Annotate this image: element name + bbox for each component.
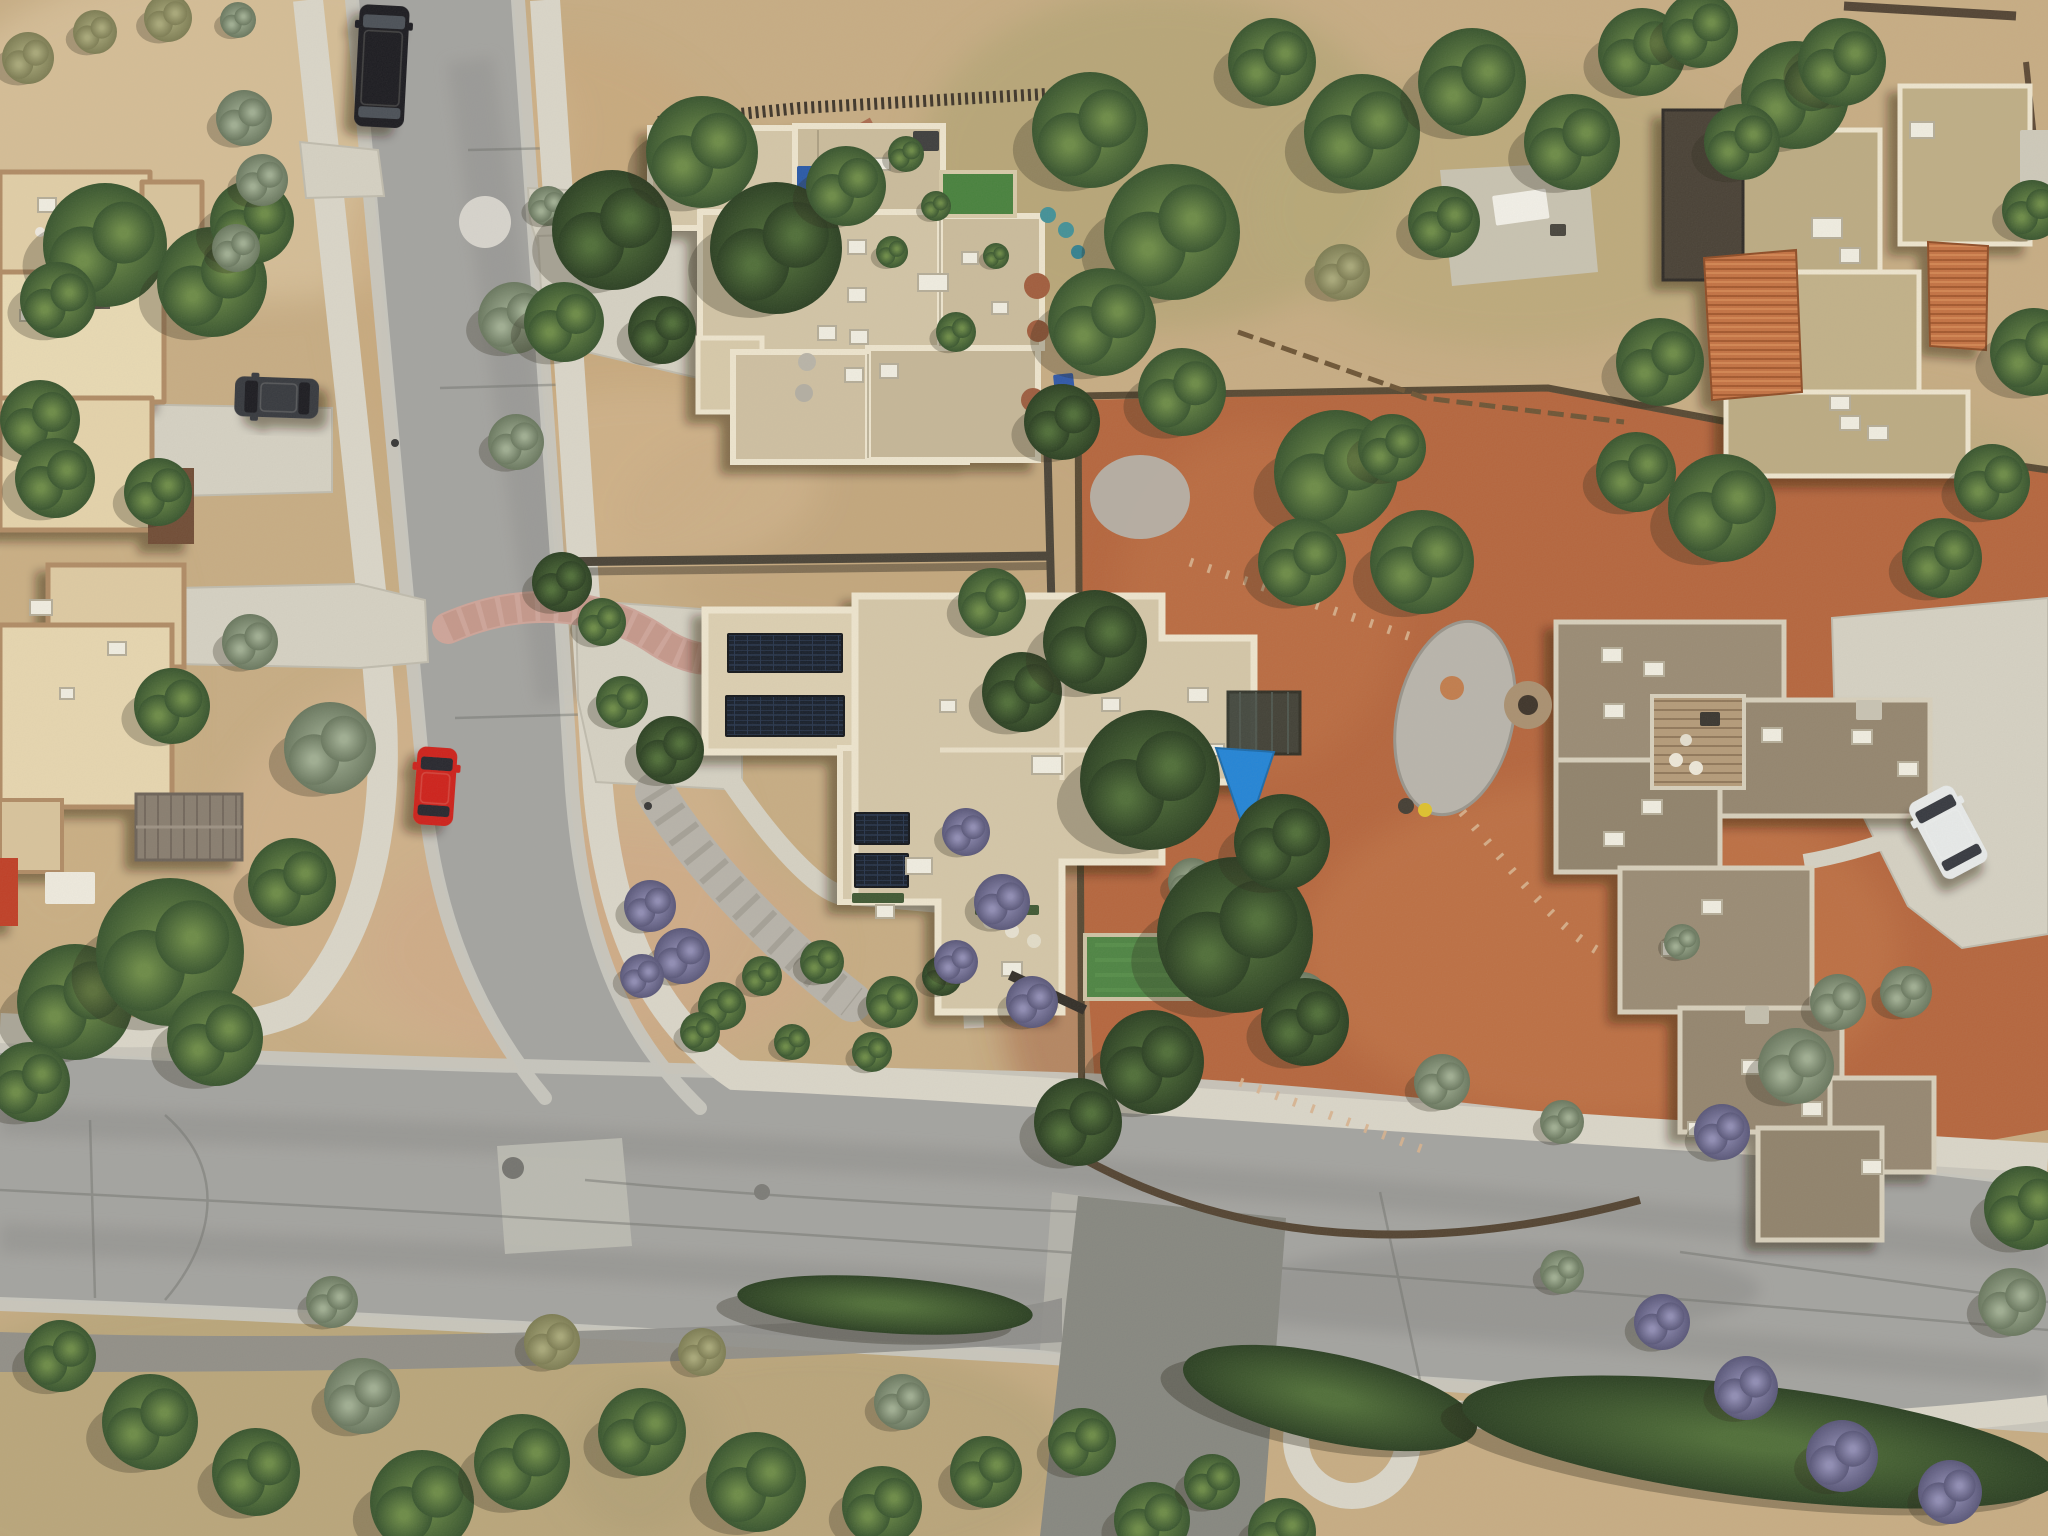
aerial-neighborhood-photo (0, 0, 2048, 1536)
photo-grain (0, 0, 2048, 1536)
aerial-photo-stage (0, 0, 2048, 1536)
